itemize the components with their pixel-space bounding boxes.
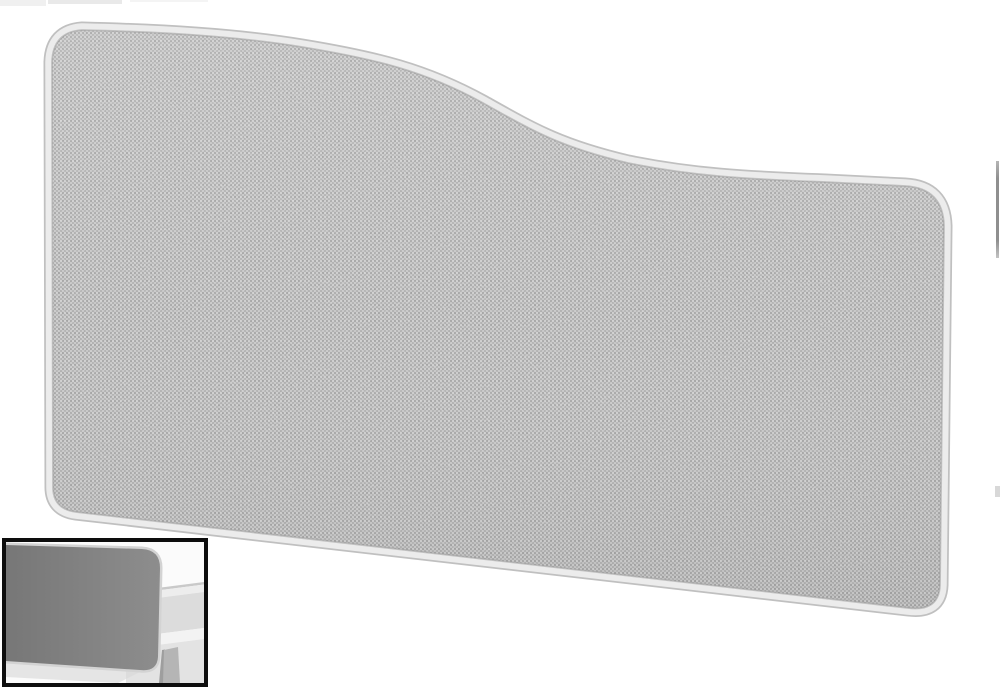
desk-leg [163, 647, 180, 683]
mounted-screen-panel [6, 545, 160, 670]
mounted-screen-scene [6, 542, 204, 683]
product-photo-stage [0, 0, 1000, 689]
thumbnail-inset [2, 538, 208, 687]
